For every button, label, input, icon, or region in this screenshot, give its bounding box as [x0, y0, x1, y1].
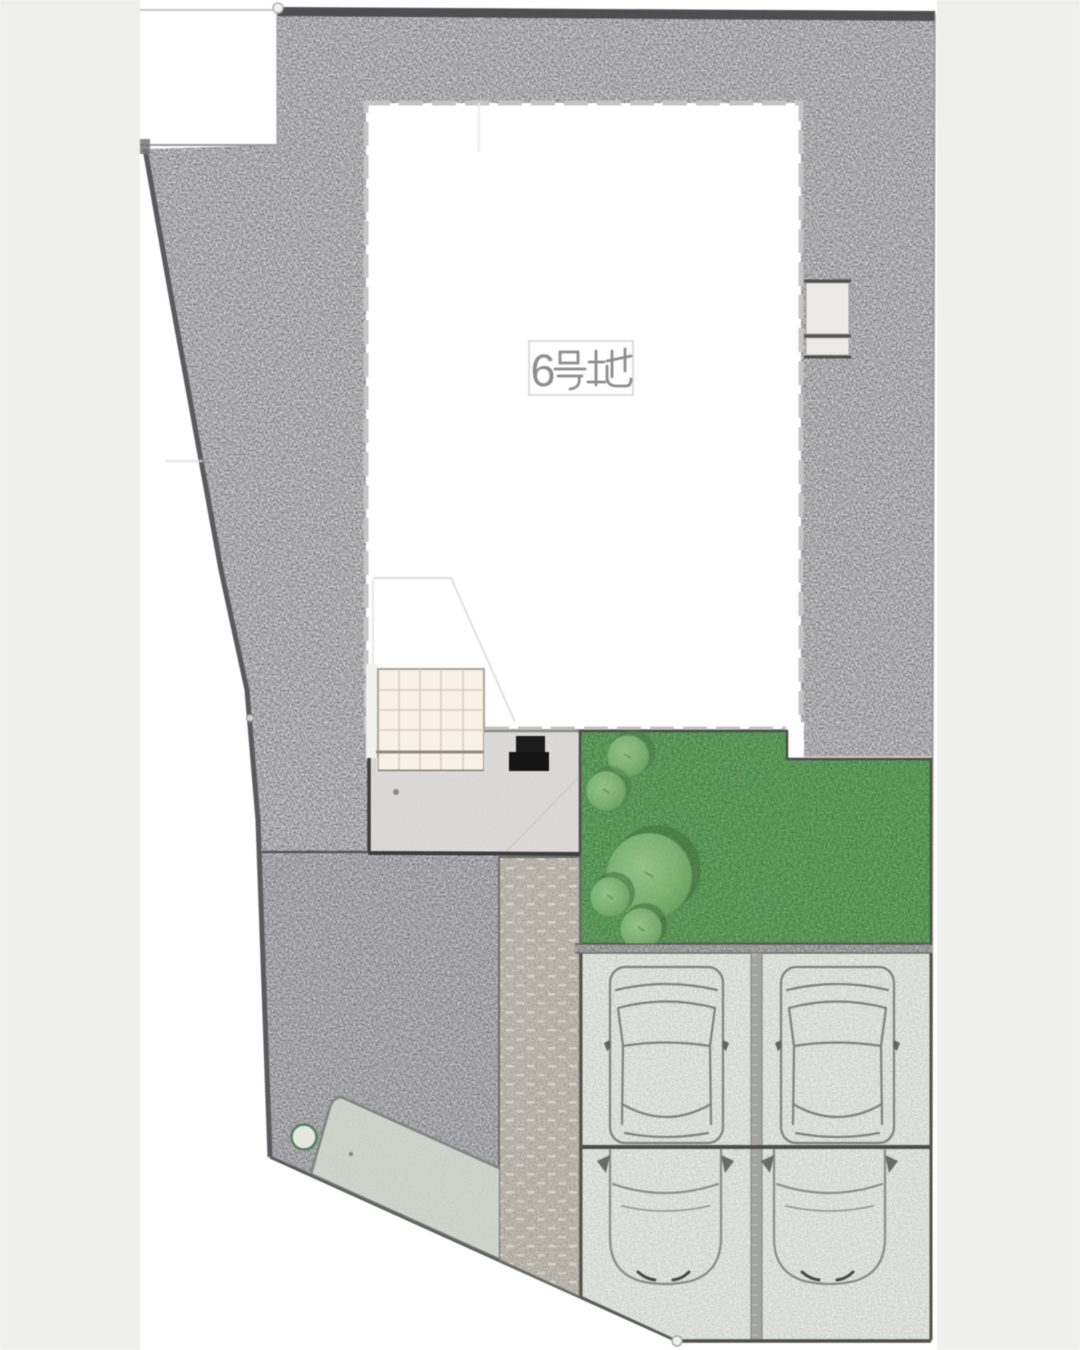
svg-text:6: 6 — [531, 345, 556, 396]
